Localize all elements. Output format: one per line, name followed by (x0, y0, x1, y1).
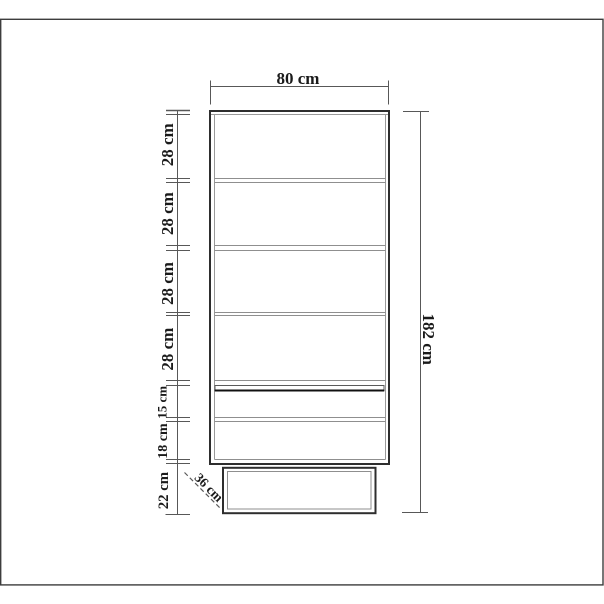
svg-text:22 cm: 22 cm (156, 471, 172, 509)
svg-text:182 cm: 182 cm (419, 313, 438, 364)
svg-text:28 cm: 28 cm (158, 192, 177, 235)
svg-text:18 cm: 18 cm (156, 423, 171, 459)
svg-text:28 cm: 28 cm (158, 328, 177, 371)
svg-text:80 cm: 80 cm (277, 69, 320, 88)
svg-text:28 cm: 28 cm (158, 123, 177, 166)
svg-text:15 cm: 15 cm (154, 386, 169, 419)
svg-text:28 cm: 28 cm (158, 262, 177, 305)
